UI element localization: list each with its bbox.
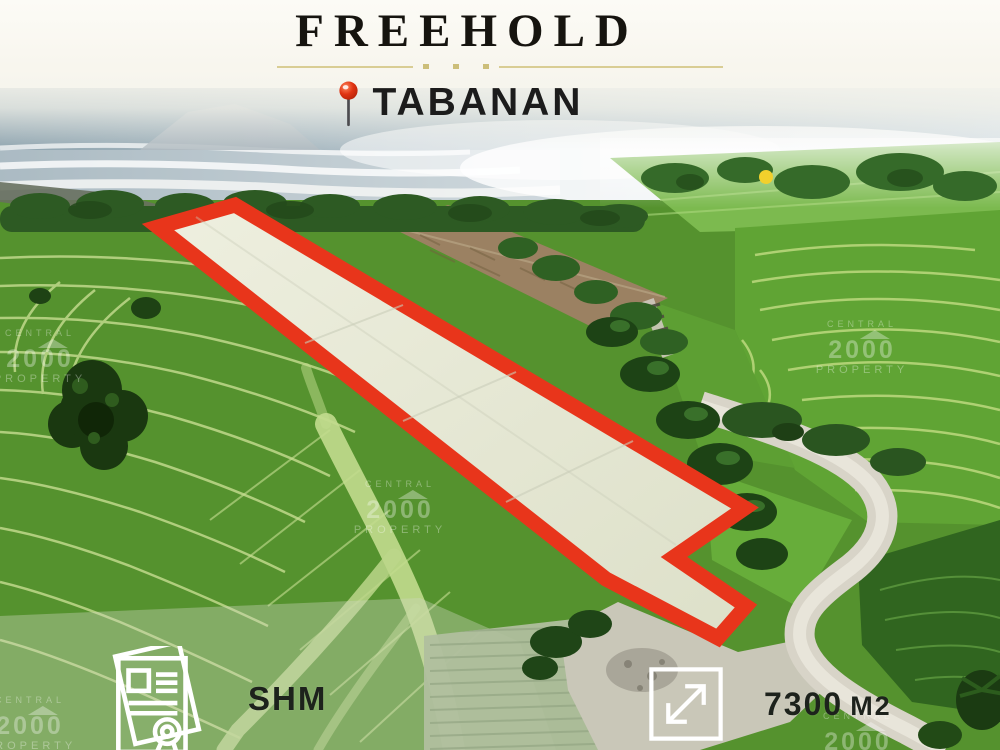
real-estate-listing-poster: CENTRAL 2000 PROPERTY CENTRAL 2000 PROPE… xyxy=(0,0,1000,750)
aerial-photo xyxy=(0,0,1000,750)
title-band xyxy=(0,0,1000,150)
area-expand-icon xyxy=(648,662,724,746)
area-label: 7300M2 xyxy=(764,686,892,723)
area-group: 7300M2 xyxy=(648,662,892,746)
area-unit: M2 xyxy=(850,691,892,721)
certificate-label: SHM xyxy=(248,680,327,718)
sun-glint xyxy=(759,170,773,184)
certificate-icon xyxy=(100,646,212,750)
area-value: 7300 xyxy=(764,686,843,722)
certificate-group: SHM xyxy=(100,646,327,750)
